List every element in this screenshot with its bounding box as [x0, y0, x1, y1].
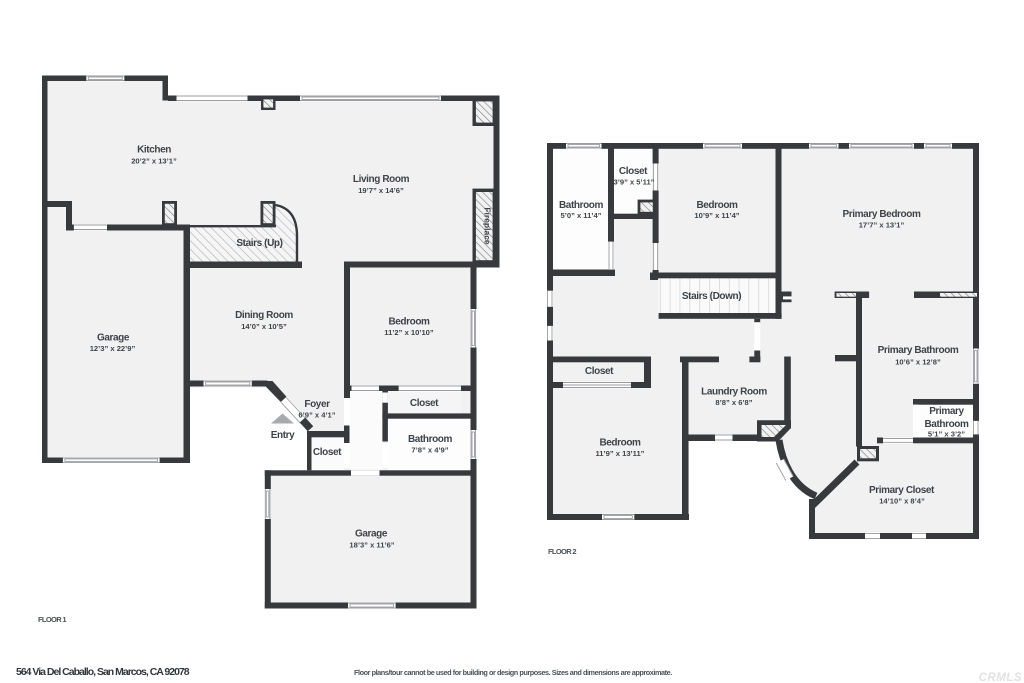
svg-text:5’0” x 11’4”: 5’0” x 11’4” [561, 211, 602, 220]
svg-text:Dining Room: Dining Room [235, 310, 293, 321]
svg-text:Primary: Primary [929, 406, 964, 417]
svg-text:11’9” x 13’11”: 11’9” x 13’11” [596, 449, 645, 458]
svg-text:Closet: Closet [619, 166, 648, 177]
svg-text:Foyer: Foyer [304, 399, 330, 410]
svg-text:Bedroom: Bedroom [599, 438, 641, 449]
svg-text:12’3” x 22’9”: 12’3” x 22’9” [90, 344, 136, 353]
svg-text:Entry: Entry [271, 430, 295, 441]
svg-text:10’6” x 12’8”: 10’6” x 12’8” [895, 358, 941, 367]
svg-text:Closet: Closet [585, 366, 614, 377]
svg-text:Stairs (Down): Stairs (Down) [682, 291, 741, 302]
svg-text:Primary Closet: Primary Closet [869, 485, 935, 496]
svg-text:Closet: Closet [313, 447, 342, 458]
svg-text:Bathroom: Bathroom [559, 200, 604, 211]
svg-text:Closet: Closet [410, 398, 439, 409]
svg-text:11’2” x 10’10”: 11’2” x 10’10” [384, 328, 434, 337]
svg-text:Bathroom: Bathroom [408, 434, 453, 445]
svg-text:3’9” x 5’11”: 3’9” x 5’11” [614, 178, 655, 187]
svg-text:6’9” x 4’1”: 6’9” x 4’1” [298, 411, 335, 420]
svg-text:FLOOR 1: FLOOR 1 [38, 615, 66, 624]
svg-text:10’9” x 11’4”: 10’9” x 11’4” [694, 211, 739, 220]
svg-text:14’10” x 8’4”: 14’10” x 8’4” [879, 497, 925, 506]
svg-text:Primary Bedroom: Primary Bedroom [843, 209, 921, 220]
svg-text:Bedroom: Bedroom [696, 200, 738, 211]
svg-text:Fireplace: Fireplace [483, 207, 493, 245]
svg-text:7’8” x 4’9”: 7’8” x 4’9” [411, 446, 448, 455]
svg-text:Kitchen: Kitchen [137, 145, 171, 156]
svg-text:Floor plans/tour cannot be use: Floor plans/tour cannot be used for buil… [354, 668, 672, 677]
svg-text:564 Via Del Caballo, San Marco: 564 Via Del Caballo, San Marcos, CA 9207… [16, 666, 190, 678]
svg-text:Garage: Garage [355, 529, 388, 540]
svg-text:18’3” x 11’6”: 18’3” x 11’6” [349, 541, 394, 550]
svg-text:Laundry Room: Laundry Room [701, 387, 767, 398]
svg-text:8’8” x 6’8”: 8’8” x 6’8” [715, 398, 752, 407]
svg-text:Stairs (Up): Stairs (Up) [236, 238, 282, 249]
svg-text:Primary Bathroom: Primary Bathroom [878, 345, 959, 356]
svg-text:CRMLS: CRMLS [979, 672, 1022, 683]
svg-text:Garage: Garage [97, 333, 130, 344]
svg-text:19’7” x 14’6”: 19’7” x 14’6” [358, 186, 404, 195]
svg-text:20’2” x 13’1”: 20’2” x 13’1” [131, 157, 177, 166]
svg-text:17’7” x 13’1”: 17’7” x 13’1” [859, 221, 905, 230]
svg-text:Bedroom: Bedroom [388, 317, 430, 328]
svg-text:5’1” x 3’2”: 5’1” x 3’2” [928, 429, 965, 438]
svg-text:FLOOR 2: FLOOR 2 [548, 547, 576, 556]
svg-text:Living Room: Living Room [353, 174, 410, 185]
svg-text:14’0” x 10’5”: 14’0” x 10’5” [241, 322, 287, 331]
